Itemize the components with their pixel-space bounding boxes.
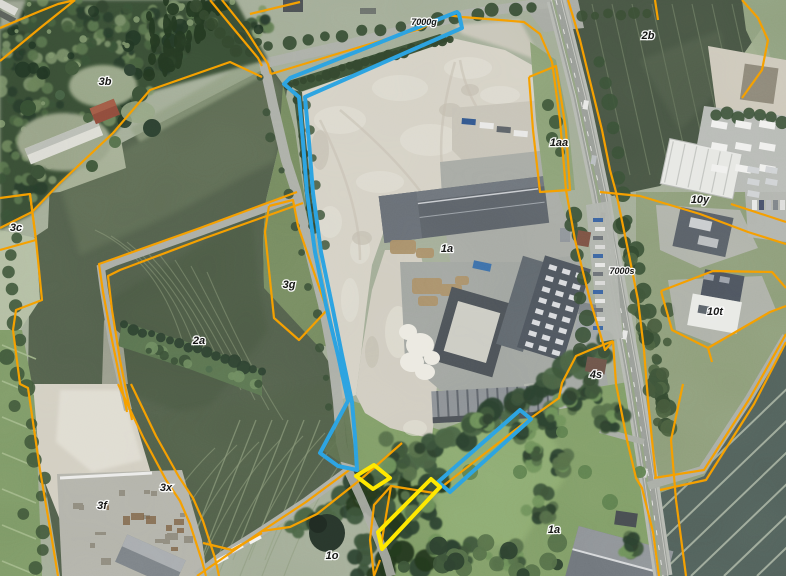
svg-text:10t: 10t — [707, 306, 724, 318]
svg-text:3b: 3b — [99, 76, 112, 88]
svg-text:10y: 10y — [691, 194, 710, 206]
svg-text:3g: 3g — [283, 279, 296, 291]
svg-text:3x: 3x — [160, 482, 173, 494]
svg-text:4s: 4s — [589, 369, 602, 381]
svg-text:7000s: 7000s — [609, 266, 634, 276]
svg-text:2b: 2b — [641, 30, 655, 42]
svg-text:7000g: 7000g — [411, 17, 437, 27]
svg-text:3f: 3f — [97, 500, 108, 512]
svg-text:2a: 2a — [192, 335, 205, 347]
svg-text:1a: 1a — [548, 524, 560, 536]
svg-text:1o: 1o — [326, 550, 339, 562]
svg-text:3c: 3c — [10, 222, 22, 234]
svg-text:1a: 1a — [441, 243, 453, 255]
svg-text:1aa: 1aa — [550, 137, 568, 149]
